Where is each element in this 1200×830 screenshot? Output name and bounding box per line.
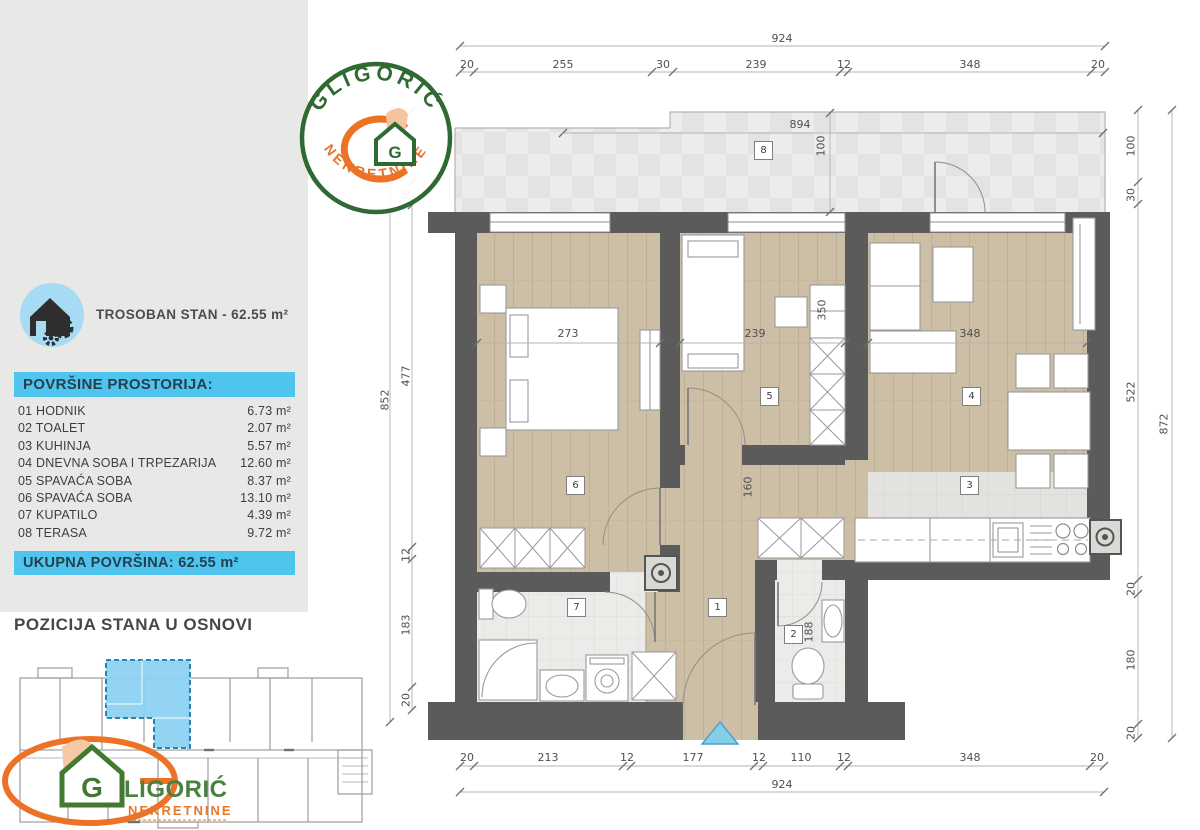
list-item: 02 TOALET 2.07 m² — [18, 420, 291, 437]
list-item: 04 DNEVNA SOBA I TRPEZARIJA 12.60 m² — [18, 455, 291, 472]
list-item: 05 SPAVAĆA SOBA 8.37 m² — [18, 473, 291, 490]
position-section-title: POZICIJA STANA U OSNOVI — [14, 615, 253, 635]
legend-total: UKUPNA POVRŠINA: 62.55 m² — [14, 551, 295, 575]
dim-left-total: 852 — [379, 390, 392, 411]
dim-left-seg: 183 — [400, 615, 413, 636]
room-name: 04 DNEVNA SOBA I TRPEZARIJA — [18, 455, 216, 472]
dim-bottom-seg: 213 — [538, 751, 559, 764]
dim-wardrobe-depth: 350 — [816, 300, 829, 321]
dim-bottom-seg: 20 — [460, 751, 474, 764]
dim-top-seg: 255 — [553, 58, 574, 71]
stamp-monogram: G — [388, 143, 401, 162]
room-tag-kuhinja: 3 — [960, 476, 979, 495]
dim-top-seg: 239 — [746, 58, 767, 71]
list-item: 08 TERASA 9.72 m² — [18, 525, 291, 542]
dim-top-seg: 30 — [656, 58, 670, 71]
room-name: 07 KUPATILO — [18, 507, 98, 524]
room-tag-spavaca-6: 6 — [566, 476, 585, 495]
room-area: 5.57 m² — [247, 438, 291, 455]
room-area: 8.37 m² — [247, 473, 291, 490]
room-tag-toalet: 2 — [784, 625, 803, 644]
dim-right-seg: 20 — [1125, 726, 1138, 740]
dim-terrace-width: 894 — [790, 118, 811, 131]
room-tag-terasa: 8 — [754, 141, 773, 160]
room-name: 06 SPAVAĆA SOBA — [18, 490, 132, 507]
list-item: 06 SPAVAĆA SOBA 13.10 m² — [18, 490, 291, 507]
dim-bottom-seg: 348 — [960, 751, 981, 764]
list-item: 01 HODNIK 6.73 m² — [18, 403, 291, 420]
dim-terrace-depth: 100 — [815, 136, 828, 157]
dim-right-seg: 522 — [1125, 382, 1138, 403]
dim-top-seg: 20 — [460, 58, 474, 71]
dim-bottom-total: 924 — [772, 778, 793, 791]
room-name: 05 SPAVAĆA SOBA — [18, 473, 132, 490]
dim-toilet-depth: 188 — [803, 622, 816, 643]
apartment-type-label: TROSOBAN STAN - 62.55 m² — [96, 307, 288, 322]
apartment-type-icon — [20, 283, 84, 347]
room-tag-dnevna: 4 — [962, 387, 981, 406]
dim-bottom-seg: 12 — [752, 751, 766, 764]
dim-right-total: 872 — [1158, 414, 1171, 435]
room-tag-spavaca-5: 5 — [760, 387, 779, 406]
dim-right-seg: 20 — [1125, 582, 1138, 596]
room-area: 12.60 m² — [240, 455, 291, 472]
dim-living-width: 348 — [960, 327, 981, 340]
room-name: 03 KUHINJA — [18, 438, 91, 455]
dim-bottom-seg: 177 — [683, 751, 704, 764]
dim-right-seg: 100 — [1125, 136, 1138, 157]
room-area: 4.39 m² — [247, 507, 291, 524]
room-tag-kupatilo: 7 — [567, 598, 586, 617]
room-area: 2.07 m² — [247, 420, 291, 437]
legend-rows: 01 HODNIK 6.73 m² 02 TOALET 2.07 m² 03 K… — [14, 397, 295, 546]
legend-title: POVRŠINE PROSTORIJA: — [14, 372, 295, 397]
footer-logo: G LIGORIĆ NEKRETNINE — [0, 733, 232, 830]
list-item: 07 KUPATILO 4.39 m² — [18, 507, 291, 524]
dim-top-seg: 12 — [837, 58, 851, 71]
dim-bedroom5-width: 239 — [745, 327, 766, 340]
floor-plan-drawing — [380, 20, 1200, 830]
dim-top-total: 924 — [772, 32, 793, 45]
room-tag-hodnik: 1 — [708, 598, 727, 617]
dim-bottom-seg: 12 — [620, 751, 634, 764]
room-areas-legend: POVRŠINE PROSTORIJA: 01 HODNIK 6.73 m² 0… — [14, 372, 295, 575]
room-area: 9.72 m² — [247, 525, 291, 542]
dim-bottom-seg: 110 — [791, 751, 812, 764]
dim-hall-width: 160 — [742, 477, 755, 498]
footer-brand-rest: LIGORIĆ — [124, 775, 228, 803]
room-area: 13.10 m² — [240, 490, 291, 507]
dim-left-seg: 20 — [400, 693, 413, 707]
room-name: 08 TERASA — [18, 525, 87, 542]
room-area: 6.73 m² — [247, 403, 291, 420]
dim-right-seg: 30 — [1125, 188, 1138, 202]
room-name: 01 HODNIK — [18, 403, 86, 420]
room-name: 02 TOALET — [18, 420, 85, 437]
dim-top-seg: 348 — [960, 58, 981, 71]
brand-stamp-logo: GLIGORIĆ NEKRETNINE G — [296, 58, 456, 218]
floor-plan-page: { "header": { "apartment_label": "TROSOB… — [0, 0, 1200, 830]
dim-bottom-seg: 20 — [1090, 751, 1104, 764]
dim-left-seg: 477 — [400, 366, 413, 387]
dim-bottom-seg: 12 — [837, 751, 851, 764]
dim-top-seg: 20 — [1091, 58, 1105, 71]
footer-brand-subtitle: NEKRETNINE — [128, 803, 232, 818]
dim-left-seg: 12 — [400, 548, 413, 562]
footer-monogram: G — [81, 772, 103, 803]
dim-bedroom6-width: 273 — [558, 327, 579, 340]
dim-right-seg: 180 — [1125, 650, 1138, 671]
list-item: 03 KUHINJA 5.57 m² — [18, 438, 291, 455]
